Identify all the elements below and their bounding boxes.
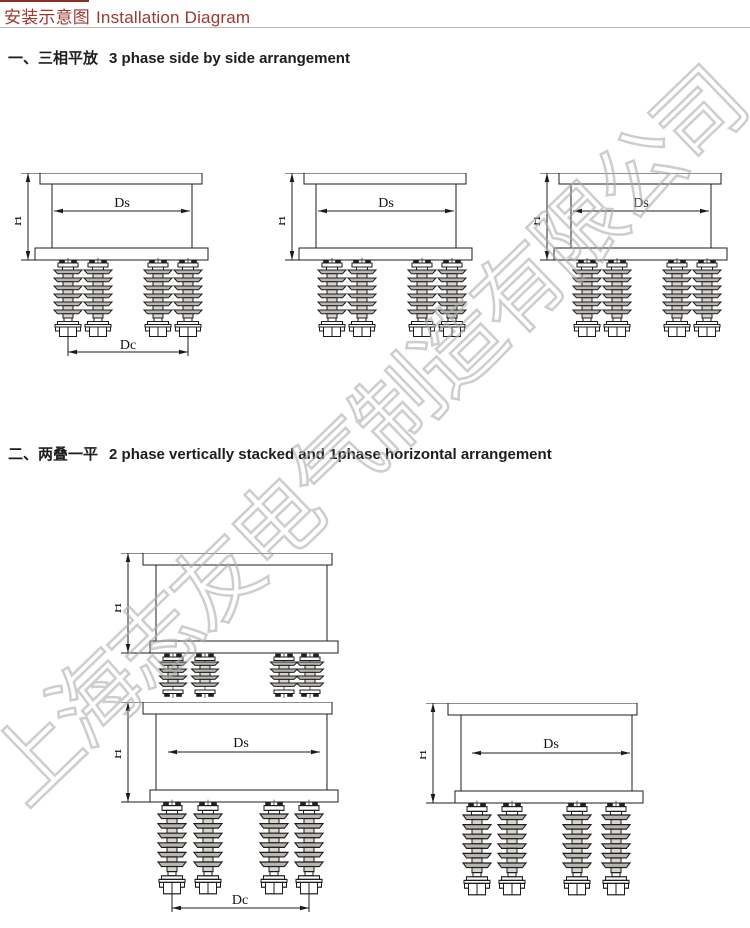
page-header: 安装示意图Installation Diagram <box>0 0 750 28</box>
page-title: 安装示意图Installation Diagram <box>4 3 250 28</box>
insulator-icon <box>144 258 172 337</box>
insulator-icon <box>84 258 112 337</box>
insulator-icon <box>693 258 721 337</box>
h-dimension-label: H <box>115 749 125 759</box>
insulator-icon <box>318 258 346 337</box>
insulator-icon <box>563 801 591 896</box>
insulator-icon <box>498 801 526 896</box>
h-dimension-label: H <box>279 216 289 226</box>
insulator-icon <box>54 258 82 337</box>
section-1-heading: 一、三相平放3 phase side by side arrangement <box>8 47 350 68</box>
drawing-stacked-lower-unit: H Ds Dc <box>115 702 350 916</box>
h-dimension-label: H <box>15 216 25 226</box>
ds-dimension-label: Ds <box>378 196 394 211</box>
insulator-icon <box>348 258 376 337</box>
ds-dimension-label: Ds <box>233 736 249 751</box>
section-1-heading-zh: 一、三相平放 <box>8 50 98 67</box>
page-title-zh: 安装示意图 <box>4 8 90 27</box>
insulator-icon <box>663 258 691 337</box>
insulator-icon <box>603 258 631 337</box>
spacer-insulator-icon <box>160 653 187 698</box>
insulator-icon <box>194 800 222 895</box>
section-1-heading-en: 3 phase side by side arrangement <box>109 50 350 67</box>
h-dimension-label: H <box>115 603 125 613</box>
drawing-phase-c-side-view: Ds H <box>534 173 734 343</box>
ds-dimension-label: Ds <box>633 196 649 211</box>
h-dimension-label: H <box>420 750 430 760</box>
section-2-heading-zh: 二、两叠一平 <box>8 446 98 463</box>
installation-diagram-page: 安装示意图Installation Diagram 一、三相平放3 phase … <box>0 0 750 928</box>
insulator-icon <box>573 258 601 337</box>
insulator-icon <box>438 258 466 337</box>
spacer-insulator-icon <box>297 653 324 698</box>
drawing-stacked-upper-unit: H <box>115 553 345 701</box>
insulator-icon <box>158 800 186 895</box>
insulator-icon <box>463 801 491 896</box>
drawing-phase-a-side-view: Ds H Dc <box>15 173 215 363</box>
page-title-en: Installation Diagram <box>96 8 250 27</box>
ds-dimension-label: Ds <box>543 737 559 752</box>
drawing-phase-b-side-view: Ds H <box>279 173 479 343</box>
spacer-insulator-icon <box>192 653 219 698</box>
drawing-horizontal-unit: H Ds <box>420 703 655 903</box>
dc-dimension-label: Dc <box>120 338 136 353</box>
h-dimension-label: H <box>534 216 544 226</box>
section-2-heading-en: 2 phase vertically stacked and 1phase ho… <box>109 446 552 463</box>
insulator-icon <box>295 800 323 895</box>
section-2-heading: 二、两叠一平2 phase vertically stacked and 1ph… <box>8 443 552 464</box>
spacer-insulator-icon <box>271 653 298 698</box>
insulator-icon <box>260 800 288 895</box>
insulator-icon <box>174 258 202 337</box>
dc-dimension-label: Dc <box>232 893 248 908</box>
ds-dimension-label: Ds <box>114 196 130 211</box>
header-accent-rule <box>0 0 89 2</box>
insulator-icon <box>602 801 630 896</box>
insulator-icon <box>408 258 436 337</box>
header-divider <box>0 27 750 28</box>
